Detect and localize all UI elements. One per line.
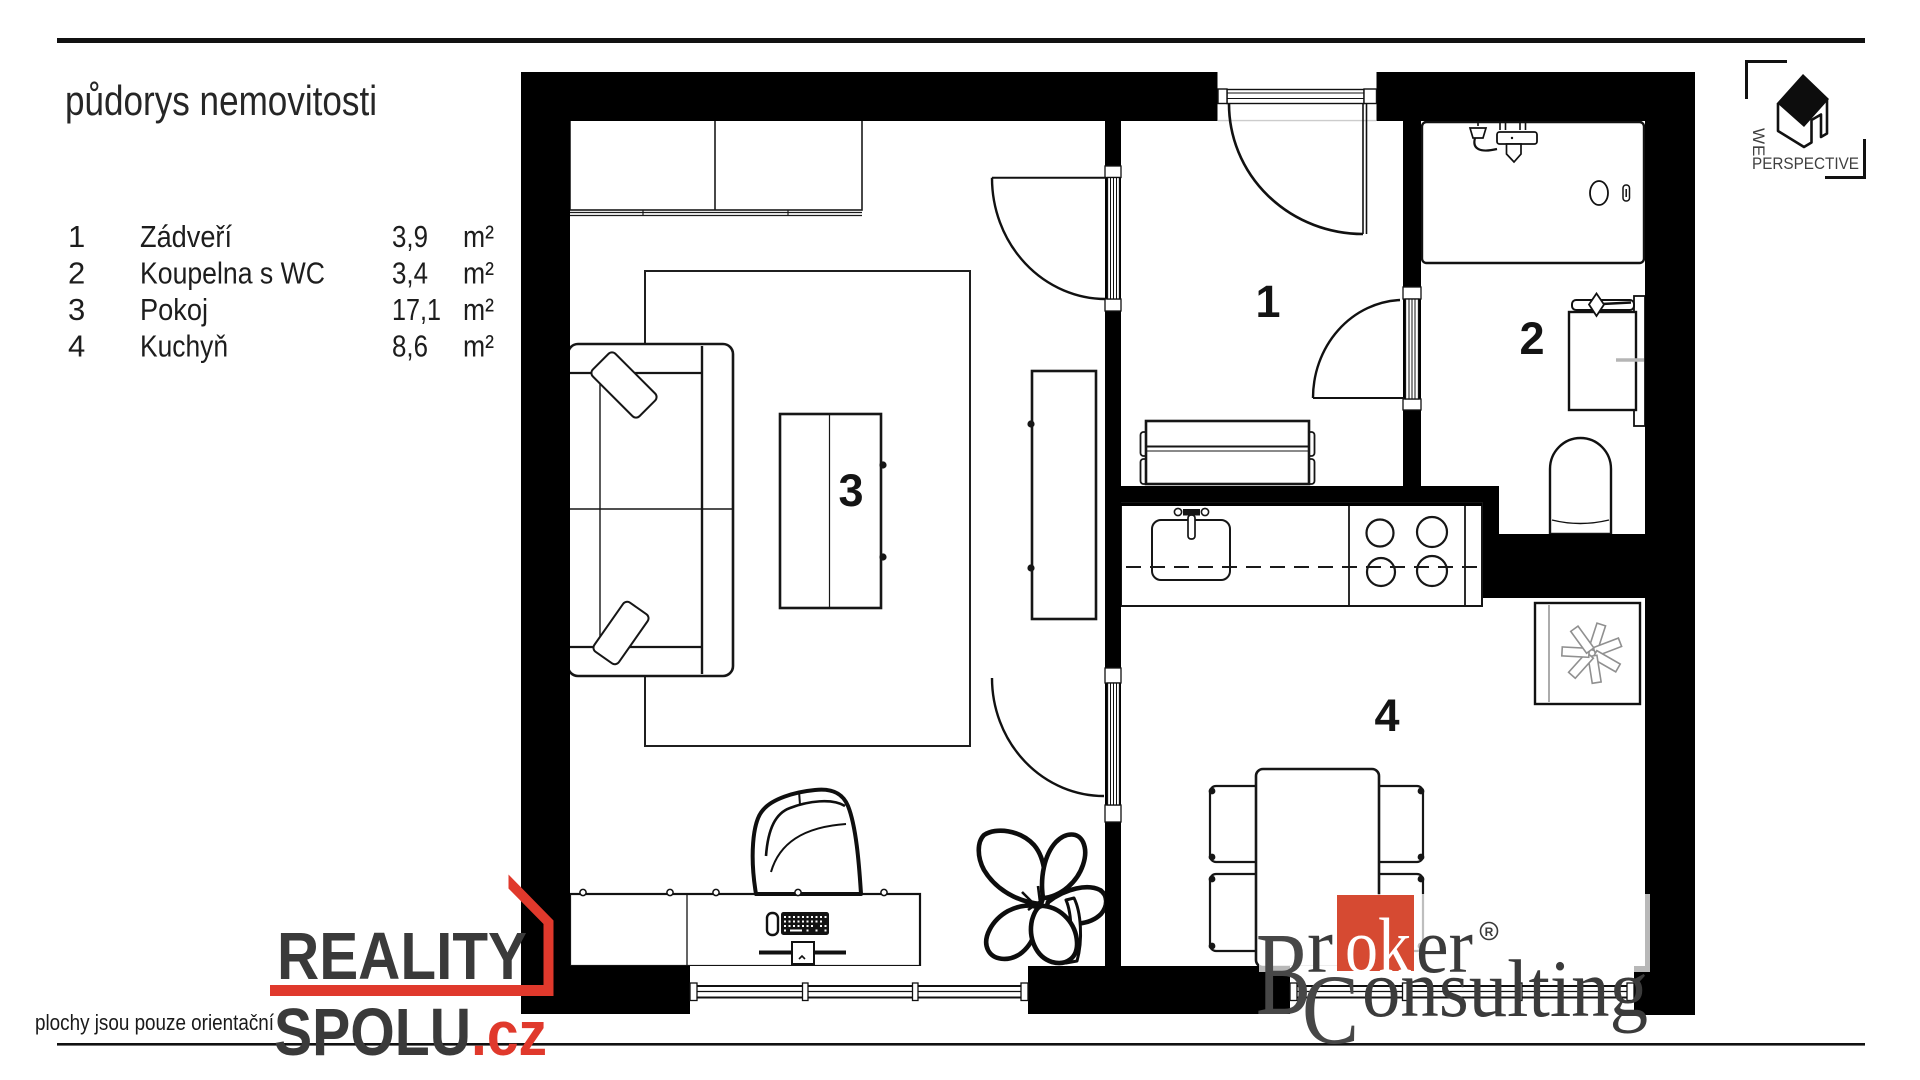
svg-text:.cz: .cz <box>471 1000 547 1069</box>
svg-text:3,4: 3,4 <box>392 256 428 291</box>
svg-text:Pokoj: Pokoj <box>140 292 208 327</box>
svg-text:REALITY: REALITY <box>277 919 527 994</box>
svg-text:Koupelna s WC: Koupelna s WC <box>140 256 325 291</box>
svg-text:1: 1 <box>1255 276 1280 327</box>
svg-text:WE: WE <box>1749 128 1768 157</box>
svg-text:m²: m² <box>463 256 494 291</box>
svg-text:Kuchyň: Kuchyň <box>140 329 228 364</box>
svg-text:půdorys nemovitosti: půdorys nemovitosti <box>65 77 377 124</box>
svg-text:3: 3 <box>68 292 85 327</box>
svg-text:2: 2 <box>68 256 85 291</box>
svg-text:Zádveří: Zádveří <box>140 219 232 254</box>
svg-text:m²: m² <box>463 329 494 364</box>
svg-text:PERSPECTIVE: PERSPECTIVE <box>1752 154 1859 173</box>
svg-text:3,9: 3,9 <box>392 219 428 254</box>
svg-text:4: 4 <box>68 329 85 364</box>
svg-text:1: 1 <box>68 219 85 254</box>
svg-text:plochy jsou pouze orientační: plochy jsou pouze orientační <box>35 1010 274 1035</box>
svg-text:m²: m² <box>463 219 494 254</box>
svg-text:onsulting: onsulting <box>1362 943 1648 1034</box>
svg-text:2: 2 <box>1519 313 1544 364</box>
svg-text:C: C <box>1302 954 1359 1065</box>
svg-text:R: R <box>1485 925 1494 939</box>
svg-text:SPOLU: SPOLU <box>274 995 471 1070</box>
svg-text:8,6: 8,6 <box>392 329 428 364</box>
svg-text:3: 3 <box>838 465 863 516</box>
svg-text:4: 4 <box>1374 690 1399 741</box>
svg-text:m²: m² <box>463 292 494 327</box>
svg-text:17,1: 17,1 <box>392 292 441 327</box>
